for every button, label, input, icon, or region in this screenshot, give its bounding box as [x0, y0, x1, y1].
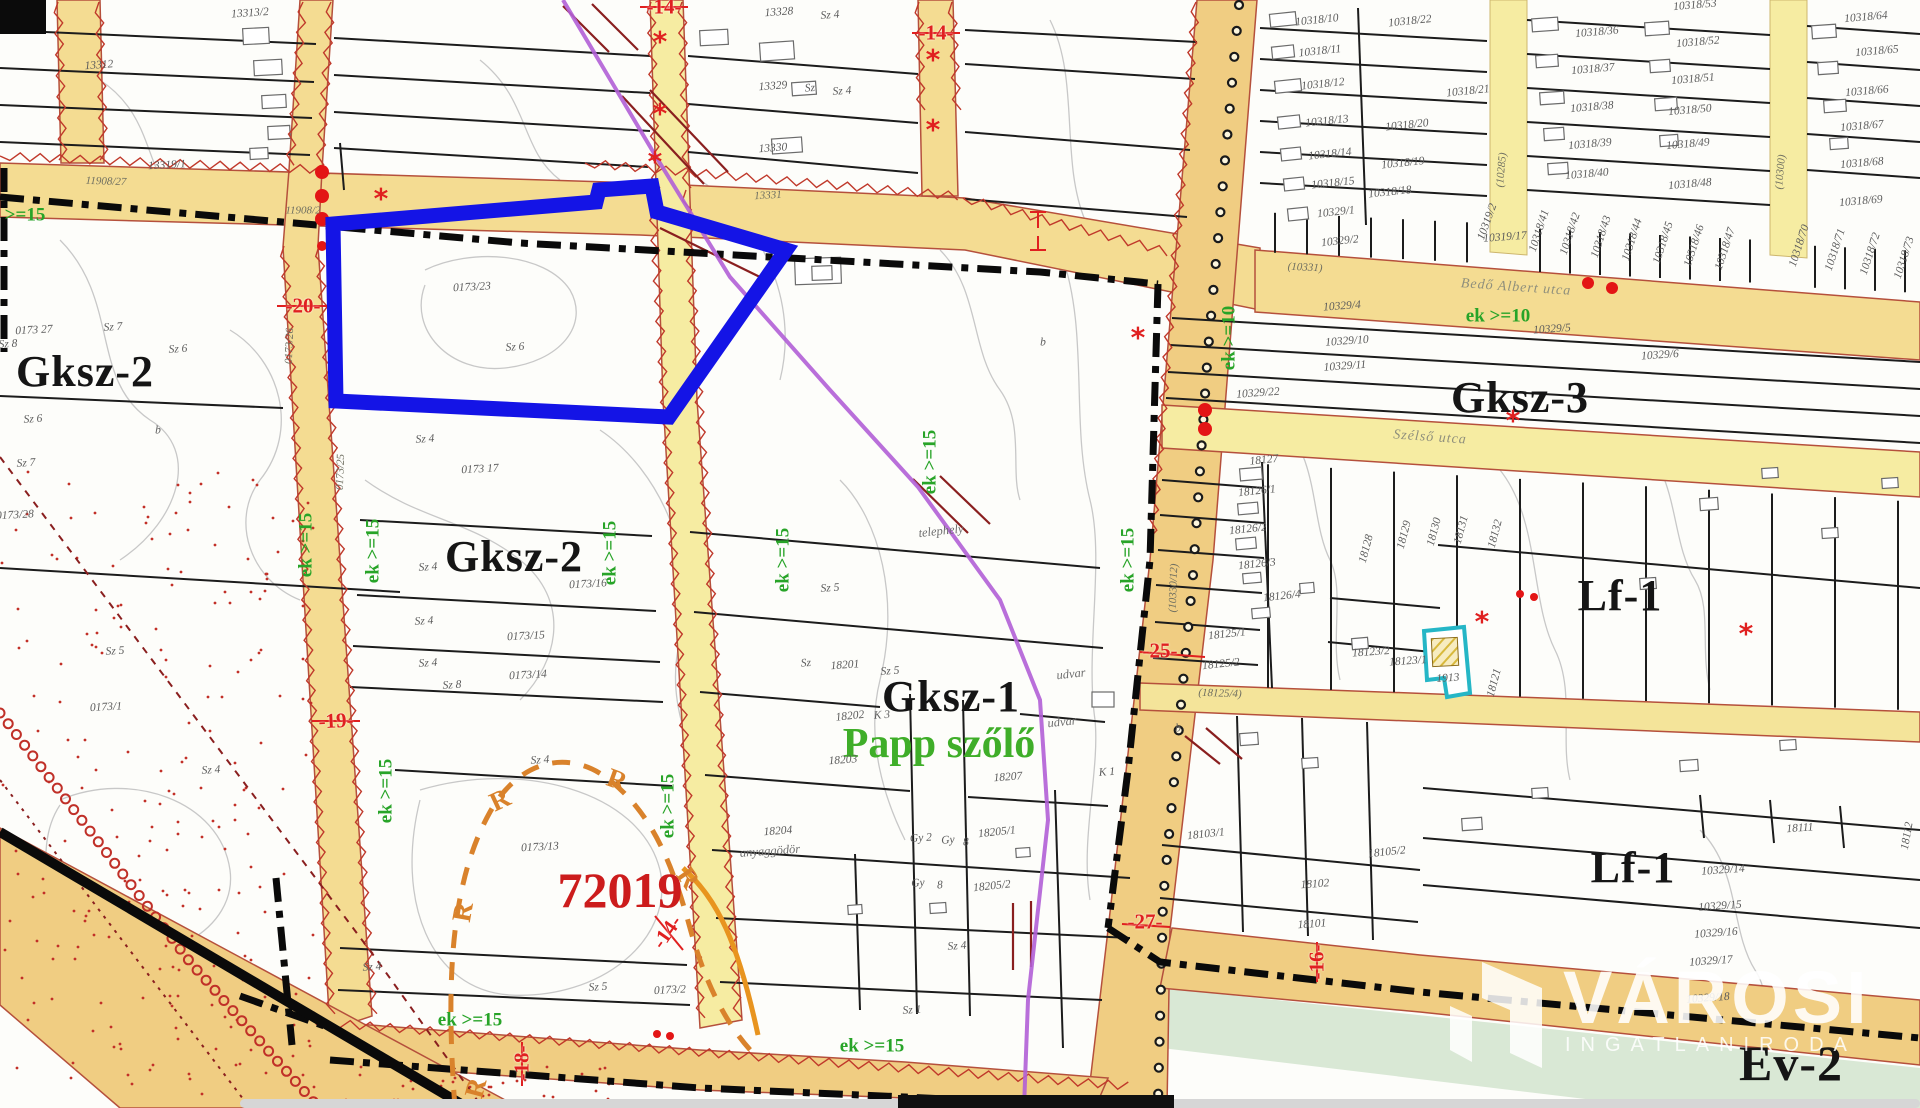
- parcel-number-label: Sz 7: [16, 458, 35, 470]
- zoning-map-frame: Gksz-2Gksz-2Gksz-1Gksz-3Lf-1Lf-1Ev-2Papp…: [0, 0, 1920, 1108]
- survey-star-symbol: *: [653, 100, 668, 128]
- road-ref-label: 0173/25: [335, 454, 347, 490]
- parcel-number-label: 0173/15: [507, 630, 545, 643]
- regulation-label: ek >=15: [840, 1037, 904, 1056]
- parcel-number-label: 18207: [993, 771, 1022, 784]
- parcel-number-label: 0173/1: [90, 701, 123, 714]
- parcel-number-label: K 3: [873, 710, 890, 723]
- zone-label: Lf-1: [1578, 574, 1663, 618]
- parcel-number-label: 10318/13: [1305, 114, 1349, 130]
- parcel-number-label: Gy: [941, 835, 955, 847]
- parcel-number-label: 10318/65: [1855, 44, 1899, 59]
- zone-label: Gksz-1: [882, 675, 1020, 719]
- parcel-number-label: 10318/52: [1676, 35, 1720, 50]
- parcel-number-label: 18102: [1300, 878, 1329, 891]
- parcel-number-label: Sz 4: [820, 10, 840, 23]
- dimension-marker-label: -20-: [286, 296, 321, 317]
- parcel-number-label: 0173/16: [569, 578, 607, 591]
- parcel-number-label: 18126/3: [1238, 557, 1277, 572]
- parcel-number-label: 10318/11: [1298, 44, 1342, 60]
- parcel-number-label: 10318/20: [1385, 118, 1429, 134]
- road-ref-label: 11908/27: [85, 176, 126, 188]
- parcel-number-label: b: [1040, 337, 1046, 349]
- parcel-number-label: Sz 8: [0, 339, 18, 351]
- parcel-number-label: 18123/1: [1389, 655, 1427, 669]
- parcel-number-label: 10318/67: [1840, 119, 1884, 134]
- parcel-number-label: Sz 5: [820, 583, 840, 596]
- parcel-number-label: 10318/53: [1673, 0, 1717, 14]
- parcel-number-label: 10329/2: [1321, 234, 1360, 249]
- parcel-number-label: 0173 27: [15, 324, 53, 337]
- parcel-number-label: 18128: [1358, 534, 1377, 565]
- parcel-number-label: 10329/5: [1533, 323, 1571, 337]
- parcel-number-label: 10329/4: [1323, 300, 1361, 314]
- road-ref-label: 0173/26: [284, 328, 296, 364]
- parcel-number-label: 18205/2: [973, 879, 1012, 894]
- road-ref-label: 13331: [754, 190, 782, 202]
- zone-label: Gksz-2: [16, 350, 154, 394]
- road-ref-label: (10331): [1287, 262, 1322, 275]
- parcel-number-label: 18131: [1453, 515, 1472, 546]
- parcel-number-label: 10329/22: [1236, 387, 1280, 402]
- regulation-label: >=15: [5, 206, 46, 225]
- regulation-label: ek >=10: [1220, 306, 1239, 370]
- parcel-number-label: 10318/45: [1652, 221, 1676, 266]
- parcel-number-label: 10329/6: [1641, 349, 1679, 363]
- parcel-number-label: 10329/10: [1325, 335, 1369, 350]
- parcel-number-label: Sz 4: [947, 941, 967, 954]
- map-label-layer: Gksz-2Gksz-2Gksz-1Gksz-3Lf-1Lf-1Ev-2Papp…: [0, 0, 1920, 1108]
- parcel-number-label: Sz 5: [880, 666, 900, 679]
- parcel-number-label: 0173/2: [654, 984, 687, 997]
- zone-label: Lf-1: [1591, 846, 1676, 890]
- parcel-number-label: 10318/18: [1368, 185, 1412, 201]
- survey-star-symbol: *: [374, 185, 389, 213]
- dimension-marker-label: -27-: [1128, 912, 1163, 933]
- parcel-number-label: 10329/14: [1701, 864, 1745, 879]
- ui-corner-overlay: [0, 0, 46, 34]
- road-ref-label: (10330/12): [1168, 563, 1181, 612]
- dimension-marker-label: -16-: [1307, 945, 1328, 980]
- street-name-label: Bedő Albert utca: [1460, 277, 1571, 299]
- parcel-number-label: Gy: [911, 878, 925, 890]
- parcel-number-label: 10318/41: [1528, 209, 1552, 254]
- progress-bar-segment: [898, 1095, 1174, 1108]
- parcel-number-label: Sz 4: [530, 755, 549, 767]
- dimension-marker-label: -14-: [919, 23, 954, 44]
- parcel-number-label: K 1: [1098, 767, 1115, 780]
- parcel-number-label: 10318/36: [1575, 25, 1619, 40]
- parcel-number-label: 10318/71: [1824, 228, 1848, 273]
- parcel-number-label: b: [1175, 723, 1181, 735]
- parcel-number-label: 18112: [1900, 821, 1916, 850]
- zone-label: Ev-2: [1739, 1038, 1843, 1088]
- archaeology-boundary-letter: R: [485, 784, 514, 817]
- parcel-number-label: Sz 6: [23, 414, 42, 426]
- parcel-number-label: 10318/44: [1621, 218, 1645, 263]
- dimension-marker-label: -18-: [512, 1046, 533, 1081]
- regulation-label: ek >=15: [297, 513, 316, 577]
- parcel-number-label: 18126/2: [1229, 522, 1268, 537]
- parcel-number-label: 0173/14: [509, 669, 547, 682]
- parcel-number-label: 10318/42: [1559, 212, 1583, 257]
- parcel-number-label: 10318/14: [1308, 147, 1352, 163]
- parcel-number-label: 18111: [1786, 822, 1814, 835]
- parcel-number-label: 10318/43: [1590, 215, 1614, 260]
- regulation-label: ek >=15: [438, 1011, 502, 1030]
- parcel-number-label: 10329/18: [1686, 992, 1730, 1007]
- regulation-label: ek >=15: [921, 430, 940, 494]
- parcel-number-label: 1913: [1436, 672, 1460, 685]
- parcel-number-label: Sz 4: [418, 658, 437, 670]
- parcel-number-label: Sz 4: [362, 962, 381, 974]
- parcel-number-label: 18205/1: [978, 825, 1017, 840]
- regulation-label: ek >=15: [377, 759, 396, 823]
- parcel-number-label: Sz 4: [832, 86, 852, 99]
- parcel-number-label: Sz: [804, 83, 815, 95]
- parcel-number-label: Sz 6: [168, 344, 187, 356]
- parcel-number-label: 0173/23: [453, 281, 491, 294]
- survey-star-symbol: *: [926, 116, 941, 144]
- parcel-number-label: Sz 7: [103, 322, 122, 334]
- survey-star-symbol: *: [1131, 324, 1146, 352]
- parcel-number-label: 18121: [1486, 668, 1505, 699]
- parcel-number-label: 10318/15: [1311, 176, 1355, 192]
- parcel-number-label: 0173/28: [0, 509, 34, 522]
- survey-star-symbol: *: [1506, 407, 1521, 435]
- parcel-number-label: b: [155, 425, 161, 437]
- parcel-number-label: 10329/15: [1698, 900, 1742, 915]
- parcel-number-label: Sz 4: [418, 562, 437, 574]
- parcel-number-label: 18204: [763, 825, 792, 838]
- parcel-number-label: 10329/1: [1317, 205, 1356, 220]
- regulation-label: ek >=15: [774, 528, 793, 592]
- regulation-label: ek >=10: [1466, 307, 1530, 326]
- parcel-number-label: 13329: [758, 80, 787, 93]
- parcel-number-label: 10318/49: [1666, 137, 1710, 152]
- parcel-number-label: 10318/10: [1295, 13, 1339, 29]
- parcel-number-label: 10329/16: [1694, 927, 1738, 942]
- parcel-number-label: 10318/19: [1381, 156, 1425, 172]
- parcel-number-label: 10329/17: [1689, 955, 1733, 970]
- parcel-number-label: 18203: [828, 754, 857, 767]
- parcel-number-label: 10318/39: [1568, 137, 1612, 152]
- parcel-number-label: 0173 17: [461, 463, 499, 476]
- parcel-number-label: 10318/47: [1714, 227, 1738, 272]
- parcel-number-label: 10318/38: [1570, 100, 1614, 115]
- map-note-label: telephely: [918, 522, 964, 539]
- parcel-number-label: 10318/69: [1839, 194, 1883, 209]
- survey-star-symbol: *: [926, 46, 941, 74]
- parcel-number-label: 10318/51: [1671, 72, 1715, 87]
- regulation-label: ek >=15: [601, 521, 620, 585]
- parcel-number-label: 18126/4: [1263, 589, 1302, 604]
- parcel-number-label: 8: [937, 880, 944, 892]
- parcel-number-label: 10318/72: [1859, 232, 1883, 277]
- parcel-number-label: 10318/40: [1565, 167, 1609, 182]
- parcel-number-label: Sz 5: [588, 982, 607, 994]
- parcel-number-label: 0173/13: [521, 841, 559, 854]
- parcel-number-label: 10318/37: [1571, 62, 1615, 77]
- parcel-number-label: 18132: [1487, 519, 1506, 550]
- parcel-number-label: 8: [963, 837, 970, 849]
- parcel-number-label: Sz 4: [201, 765, 220, 777]
- parcel-number-label: Sz 6: [505, 342, 524, 354]
- parcel-number-label: 10318/22: [1388, 14, 1432, 30]
- parcel-number-label: 18101: [1297, 918, 1326, 931]
- zone-label: Gksz-2: [445, 535, 583, 579]
- parcel-number-label: 18130: [1426, 517, 1445, 548]
- road-ref-label: 11908/2: [285, 206, 320, 217]
- parcel-number-label: 10319/17: [1483, 231, 1527, 246]
- parcel-number-label: 18103/1: [1187, 827, 1226, 842]
- survey-star-symbol: *: [653, 28, 668, 56]
- parcel-number-label: 13312: [84, 59, 113, 72]
- parcel-number-label: 18105/2: [1368, 845, 1407, 860]
- parcel-number-label: 18125/1: [1208, 627, 1247, 642]
- parcel-number-label: 10318/70: [1788, 224, 1812, 269]
- parcel-number-label: 10329/11: [1323, 360, 1366, 374]
- parcel-number-label: Sz 4: [415, 434, 434, 446]
- parcel-number-label: 10318/48: [1668, 177, 1712, 192]
- parcel-number-label: 10318/46: [1683, 224, 1707, 269]
- regulation-label: ek >=15: [1119, 528, 1138, 592]
- road-ref-label: (10285): [1495, 152, 1509, 188]
- parcel-number-label: 18123/2: [1352, 646, 1390, 660]
- survey-star-symbol: *: [1739, 620, 1754, 648]
- parcel-number-label: 10318/50: [1668, 103, 1712, 118]
- dimension-marker-label: -14-: [647, 0, 682, 18]
- parcel-number-label: 18126/1: [1238, 484, 1277, 499]
- parcel-number-label: Sz 4: [414, 616, 433, 628]
- video-progress-bar[interactable]: [240, 1099, 1920, 1108]
- parcel-number-label: 10318/21: [1446, 84, 1490, 100]
- survey-star-symbol: *: [1475, 608, 1490, 636]
- parcel-number-label: Sz 1: [902, 1005, 922, 1018]
- regulation-label: ek >=15: [659, 774, 678, 838]
- map-note-label: udvar: [1056, 666, 1086, 681]
- parcel-number-label: 18125/2: [1202, 657, 1241, 672]
- parcel-number-label: 13330: [758, 142, 787, 155]
- parcel-number-label: Sz 5: [105, 646, 124, 658]
- road-ref-label: (10300): [1774, 154, 1788, 190]
- dimension-marker-label: -25-: [1143, 641, 1178, 662]
- parcel-number-label: 18201: [830, 659, 859, 672]
- parcel-number-label: 10318/66: [1845, 84, 1889, 99]
- parcel-number-label: 10318/64: [1844, 10, 1888, 25]
- parcel-number-label: 13313/2: [231, 7, 269, 21]
- map-note-label: udvar: [1047, 714, 1077, 729]
- map-note-label: anyaggödör: [739, 843, 800, 860]
- regulation-label: ek >=15: [364, 519, 383, 583]
- dimension-marker-label: -19-: [318, 710, 354, 733]
- road-ref-label: (18125/4): [1198, 688, 1242, 701]
- parcel-number-label: Sz 8: [442, 680, 461, 692]
- archaeology-boundary-letter: R: [448, 900, 478, 924]
- parcel-number-label: 10318/68: [1840, 156, 1884, 171]
- parcel-number-label: 18127: [1249, 454, 1279, 468]
- parcel-number-label: 13328: [764, 6, 793, 19]
- parcel-number-label: 10318/12: [1301, 77, 1345, 93]
- archaeology-boundary-letter: R: [603, 764, 631, 796]
- parcel-number-label: 13319/1: [148, 159, 186, 172]
- parcel-number-label: Gy 2: [910, 832, 933, 845]
- street-name-label: Szélső utca: [1393, 428, 1467, 447]
- parcel-number-label: 10318/73: [1893, 236, 1917, 281]
- parcel-number-label: 18129: [1396, 520, 1415, 551]
- archaeology-boundary-letter: R: [460, 1075, 491, 1101]
- zone-subtitle-label: Papp szőlő: [843, 723, 1036, 765]
- survey-star-symbol: *: [648, 148, 663, 176]
- parcel-number-label: Sz: [800, 658, 811, 670]
- site-number-label: 72019: [558, 865, 683, 915]
